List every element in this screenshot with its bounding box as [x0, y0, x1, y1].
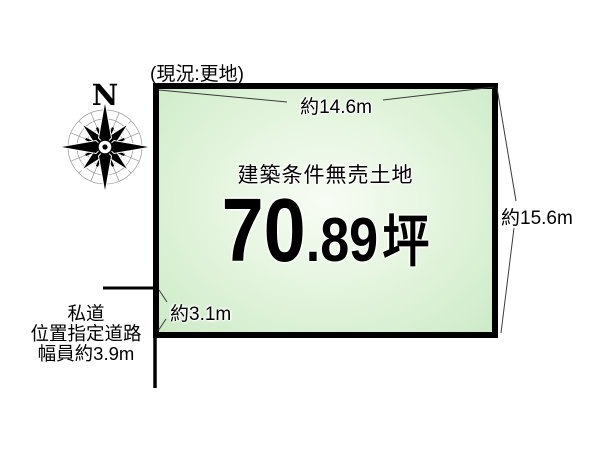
- road-label-line1: 私道: [16, 304, 156, 324]
- road-label: 私道 位置指定道路 幅員約3.9m: [16, 304, 156, 364]
- site-plan: N: [0, 0, 600, 450]
- area-label: 70.89坪: [181, 186, 471, 276]
- area-integer: 70: [222, 186, 306, 276]
- road-label-line2: 位置指定道路: [16, 324, 156, 344]
- area-unit-tsubo: 坪: [382, 214, 429, 270]
- current-status-label: (現況:更地): [150, 59, 244, 86]
- area-fraction: .89: [306, 210, 378, 272]
- sale-condition-label: 建築条件無売土地: [153, 159, 498, 189]
- compass-rose-icon: [55, 97, 155, 197]
- dimension-frontage-label: 約3.1m: [170, 299, 231, 326]
- road-label-line3: 幅員約3.9m: [16, 344, 156, 364]
- dimension-top-label: 約14.6m: [288, 92, 384, 119]
- dimension-right-label: 約15.6m: [501, 203, 573, 230]
